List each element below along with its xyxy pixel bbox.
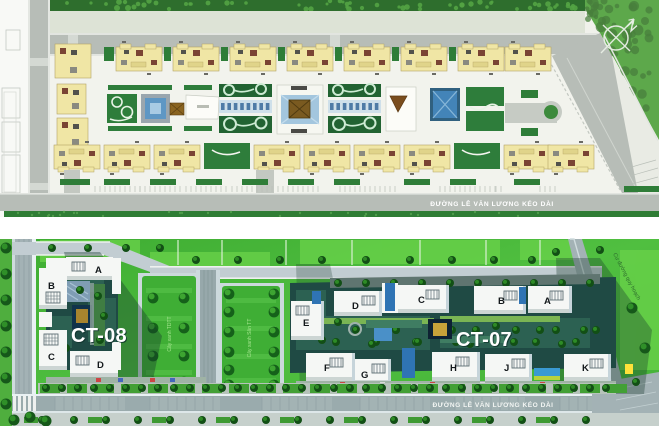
svg-text:D: D <box>352 301 359 312</box>
svg-text:C: C <box>418 295 425 306</box>
svg-text:F: F <box>324 363 330 374</box>
svg-text:C: C <box>48 352 55 363</box>
svg-text:ĐƯỜNG LÊ VĂN LƯƠNG KÉO DÀI: ĐƯỜNG LÊ VĂN LƯƠNG KÉO DÀI <box>433 400 554 409</box>
svg-text:E: E <box>303 318 309 329</box>
svg-text:B: B <box>498 296 505 307</box>
svg-text:Cây xanh Sân TT: Cây xanh Sân TT <box>247 319 253 358</box>
svg-text:J: J <box>504 363 509 374</box>
svg-text:D: D <box>97 360 104 371</box>
svg-text:B: B <box>48 281 55 292</box>
svg-text:CT-08: CT-08 <box>71 325 127 347</box>
svg-text:K: K <box>582 363 589 374</box>
svg-text:CT-07: CT-07 <box>456 329 512 351</box>
svg-text:G: G <box>361 370 368 381</box>
svg-text:A: A <box>544 296 551 307</box>
svg-text:ĐƯỜNG LÊ VĂN LƯƠNG KÉO DÀI: ĐƯỜNG LÊ VĂN LƯƠNG KÉO DÀI <box>430 199 554 208</box>
svg-text:H: H <box>450 363 457 374</box>
svg-text:A: A <box>95 265 102 276</box>
svg-text:Cây xanh TDTT: Cây xanh TDTT <box>167 316 173 351</box>
